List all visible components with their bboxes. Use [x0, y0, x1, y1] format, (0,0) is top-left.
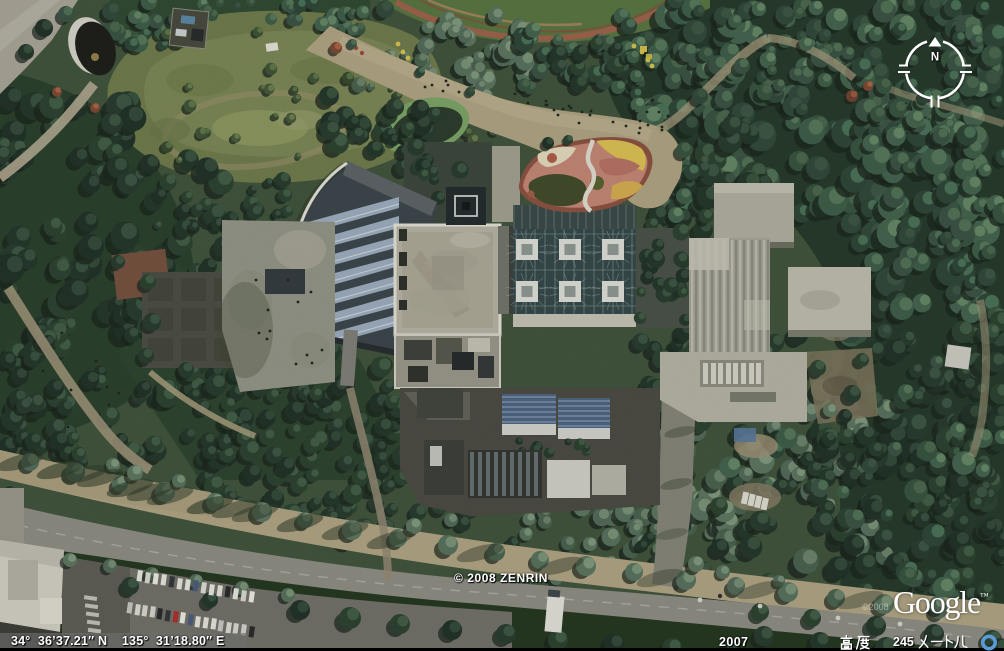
svg-text:N: N — [931, 52, 939, 64]
